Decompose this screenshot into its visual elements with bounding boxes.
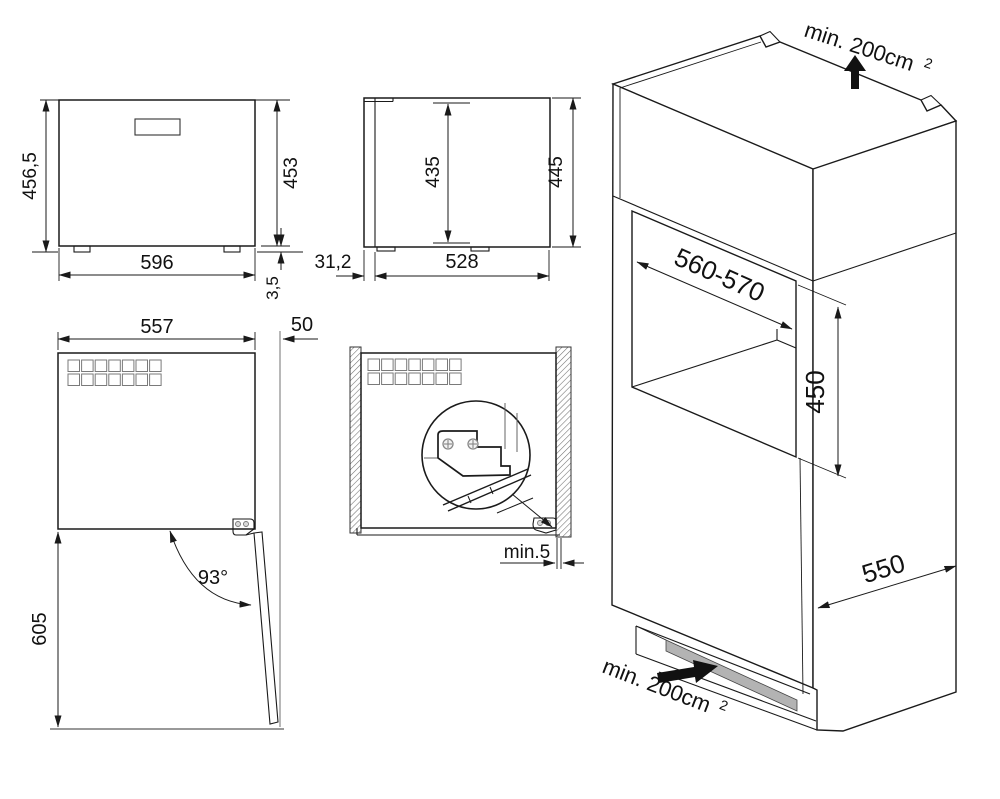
dim-door-swing-label: 605 <box>29 612 51 645</box>
dim-inner-height-label: 435 <box>423 156 444 188</box>
screw-icon <box>468 439 478 449</box>
dim-top-width-label: 557 <box>140 316 173 338</box>
cabinet-right-wall <box>556 347 571 537</box>
cabinet-right-face <box>813 121 956 731</box>
dim-door-protrusion-label: 31,2 <box>315 252 352 273</box>
screw-icon <box>443 439 453 449</box>
dim-depth-label: 528 <box>445 251 478 273</box>
appliance-side-outline <box>364 98 550 247</box>
niche-height-label: 450 <box>800 370 830 413</box>
dim-body-height-label: 453 <box>281 157 302 189</box>
dim-width-label: 596 <box>140 252 173 274</box>
top-view-installed: min.5 <box>350 347 584 569</box>
right-foot <box>224 246 240 252</box>
front-view: 456,5 453 596 3,5 <box>20 100 303 300</box>
top-view-door-open: 557 50 93° 605 <box>29 314 318 729</box>
display-panel <box>135 119 180 135</box>
dim-overall-height-label: 445 <box>546 156 567 188</box>
installation-isometric-view: 560-570 450 550 min. 200cm 2 min. 200cm … <box>599 16 956 731</box>
dim-clearance-label: 50 <box>291 314 313 336</box>
cabinet-left-wall <box>350 347 361 533</box>
dim-total-height-label: 456,5 <box>20 152 41 200</box>
open-door-panel <box>254 532 278 724</box>
side-view: 435 445 31,2 528 <box>315 98 581 281</box>
min-side-gap-label: min.5 <box>504 542 550 563</box>
appliance-top-outline <box>58 353 255 529</box>
left-foot <box>74 246 90 252</box>
door-angle-label: 93° <box>198 567 228 589</box>
dim-feet-height-label: 3,5 <box>263 276 282 300</box>
installation-drawing-page: 456,5 453 596 3,5 435 445 31,2 528 <box>0 0 1000 799</box>
technical-drawing: 456,5 453 596 3,5 435 445 31,2 528 <box>0 0 1000 799</box>
